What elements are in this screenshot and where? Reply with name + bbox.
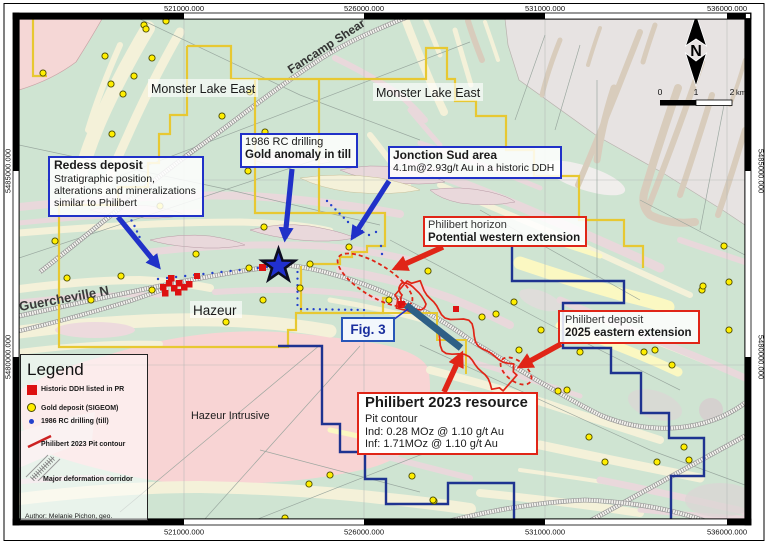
svg-text:5485000.000: 5485000.000 bbox=[757, 149, 766, 193]
svg-text:536000.000: 536000.000 bbox=[707, 528, 747, 537]
svg-text:521000.000: 521000.000 bbox=[164, 4, 204, 13]
svg-text:526000.000: 526000.000 bbox=[344, 4, 384, 13]
svg-text:N: N bbox=[690, 43, 702, 60]
svg-text:Monster Lake East: Monster Lake East bbox=[151, 82, 256, 96]
svg-text:5480000.000: 5480000.000 bbox=[757, 335, 766, 379]
svg-text:1: 1 bbox=[694, 87, 699, 97]
svg-text:5485000.000: 5485000.000 bbox=[4, 149, 13, 193]
svg-text:526000.000: 526000.000 bbox=[344, 528, 384, 537]
svg-text:Monster Lake East: Monster Lake East bbox=[376, 86, 481, 100]
svg-text:Hazeur Intrusive: Hazeur Intrusive bbox=[191, 410, 270, 422]
svg-text:5480000.000: 5480000.000 bbox=[4, 335, 13, 379]
svg-text:2: 2 bbox=[730, 87, 735, 97]
svg-text:521000.000: 521000.000 bbox=[164, 528, 204, 537]
svg-text:Hazeur: Hazeur bbox=[193, 303, 237, 318]
svg-text:536000.000: 536000.000 bbox=[707, 4, 747, 13]
svg-text:531000.000: 531000.000 bbox=[525, 528, 565, 537]
svg-text:531000.000: 531000.000 bbox=[525, 4, 565, 13]
svg-text:0: 0 bbox=[658, 87, 663, 97]
